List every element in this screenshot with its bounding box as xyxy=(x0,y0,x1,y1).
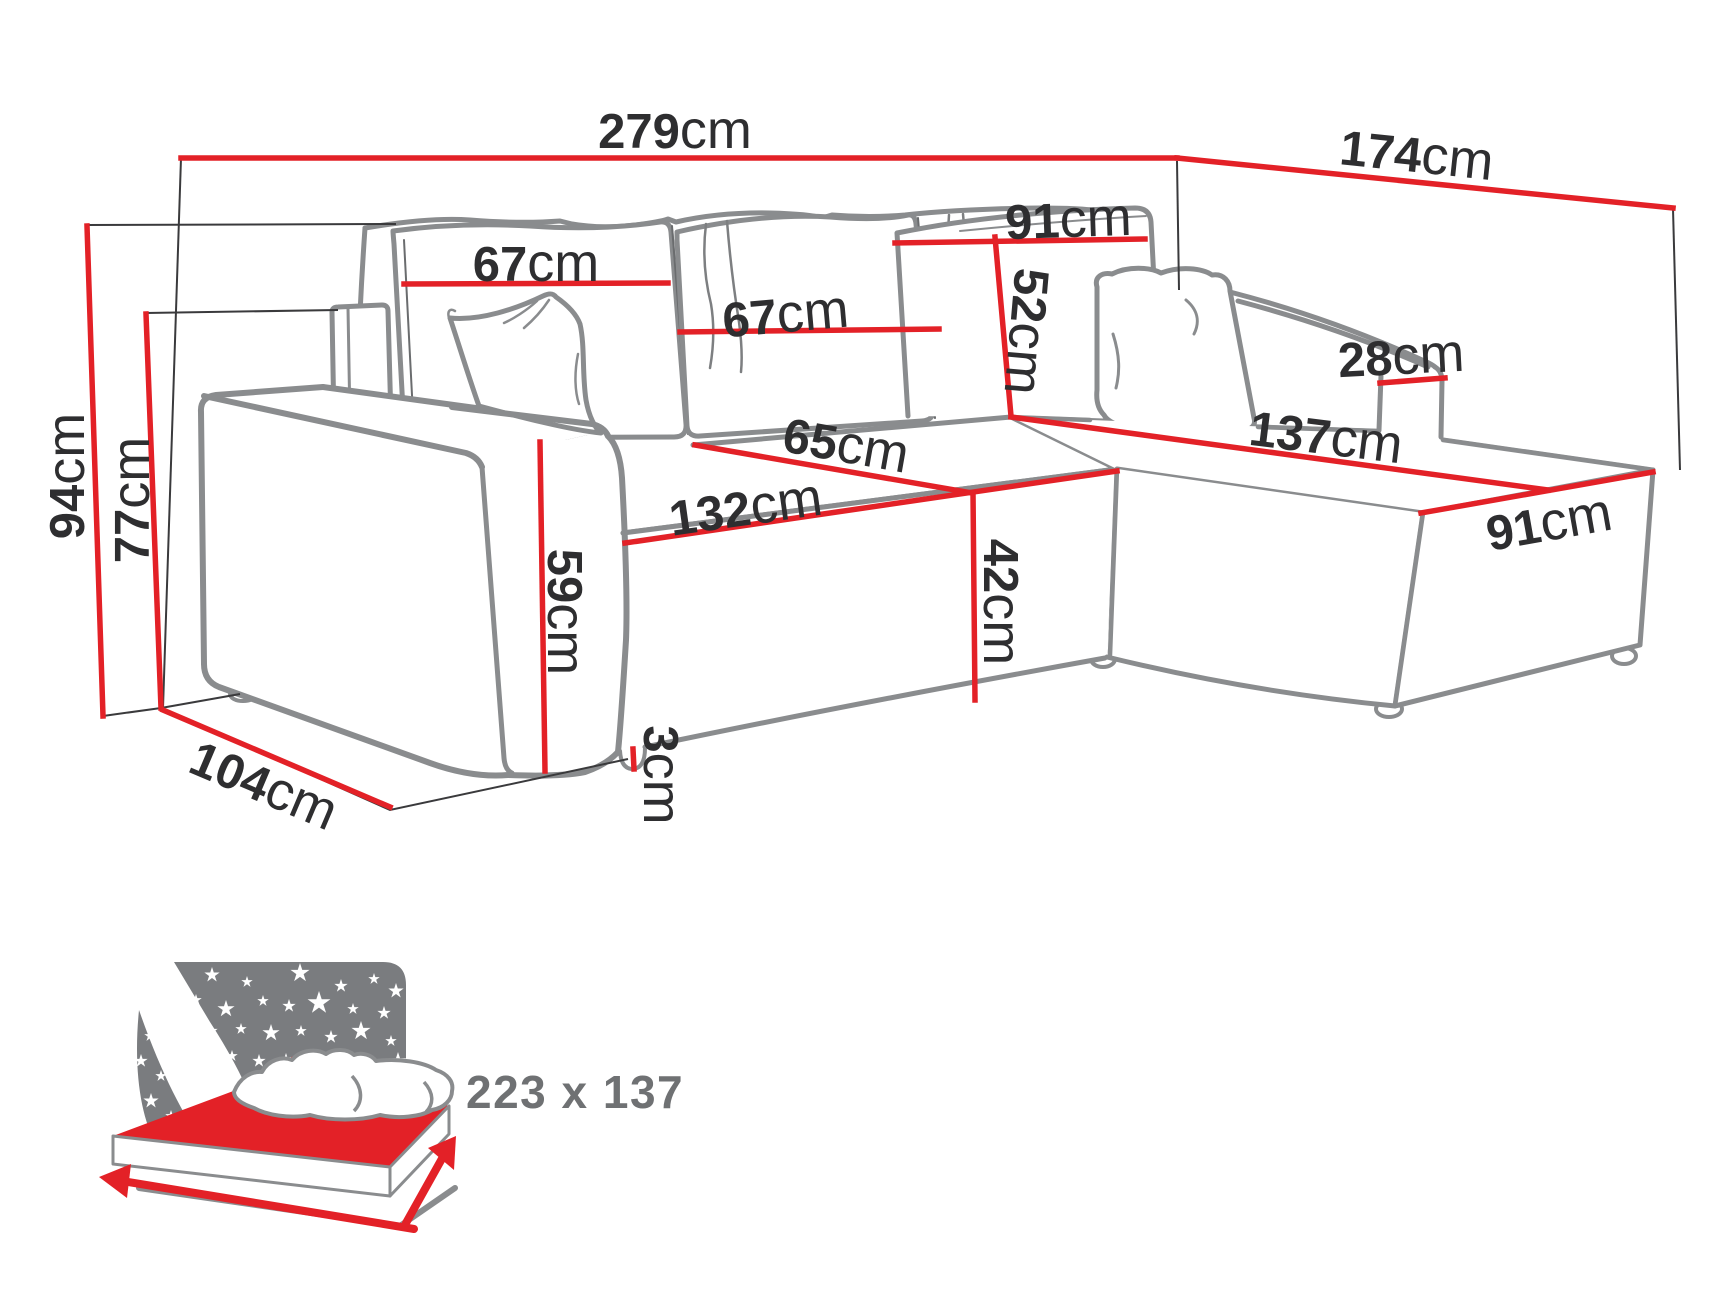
svg-text:279cm: 279cm xyxy=(598,100,752,160)
svg-text:223 x 137: 223 x 137 xyxy=(466,1066,684,1118)
svg-text:91cm: 91cm xyxy=(1004,187,1133,251)
svg-text:174cm: 174cm xyxy=(1337,116,1496,192)
svg-text:67cm: 67cm xyxy=(473,233,600,293)
svg-text:77cm: 77cm xyxy=(101,437,161,564)
svg-text:3cm: 3cm xyxy=(632,725,692,824)
svg-text:52cm: 52cm xyxy=(993,266,1064,397)
svg-text:42cm: 42cm xyxy=(972,539,1032,666)
svg-text:59cm: 59cm xyxy=(536,549,596,676)
svg-text:28cm: 28cm xyxy=(1336,323,1465,390)
svg-text:104cm: 104cm xyxy=(182,727,347,842)
svg-text:94cm: 94cm xyxy=(36,413,96,540)
